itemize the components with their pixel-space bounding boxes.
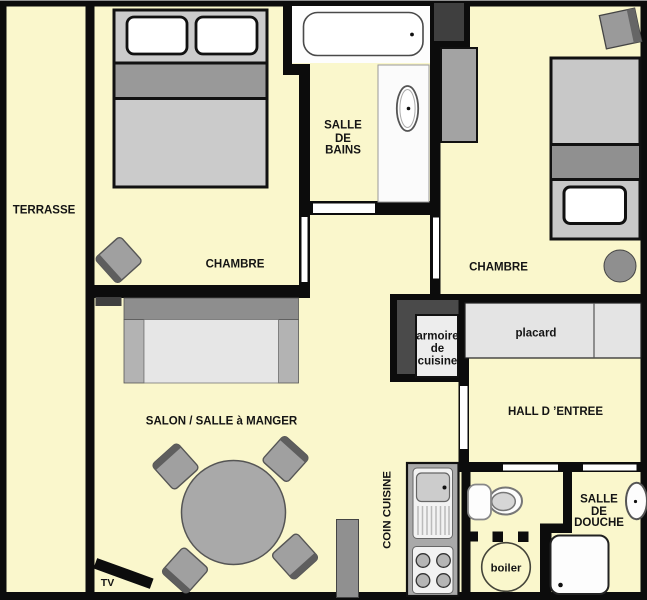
svg-text:cuisine: cuisine bbox=[418, 356, 458, 368]
svg-text:SALLE: SALLE bbox=[324, 120, 362, 132]
svg-text:boiler: boiler bbox=[491, 563, 522, 575]
svg-text:DOUCHE: DOUCHE bbox=[574, 517, 624, 529]
svg-text:TERRASSE: TERRASSE bbox=[13, 205, 76, 217]
svg-text:HALL D ’ENTREE: HALL D ’ENTREE bbox=[508, 406, 603, 418]
svg-text:de: de bbox=[431, 343, 444, 355]
svg-text:BAINS: BAINS bbox=[325, 145, 361, 157]
svg-text:armoire: armoire bbox=[416, 331, 458, 343]
svg-text:CHAMBRE: CHAMBRE bbox=[469, 262, 528, 274]
svg-text:TV: TV bbox=[101, 577, 114, 589]
svg-text:placard: placard bbox=[516, 328, 557, 340]
svg-text:COIN CUISINE: COIN CUISINE bbox=[382, 471, 394, 549]
svg-text:SALON / SALLE à MANGER: SALON / SALLE à MANGER bbox=[146, 416, 298, 428]
svg-text:DE: DE bbox=[335, 133, 351, 145]
svg-text:SALLE: SALLE bbox=[580, 494, 618, 506]
svg-text:CHAMBRE: CHAMBRE bbox=[206, 259, 265, 271]
